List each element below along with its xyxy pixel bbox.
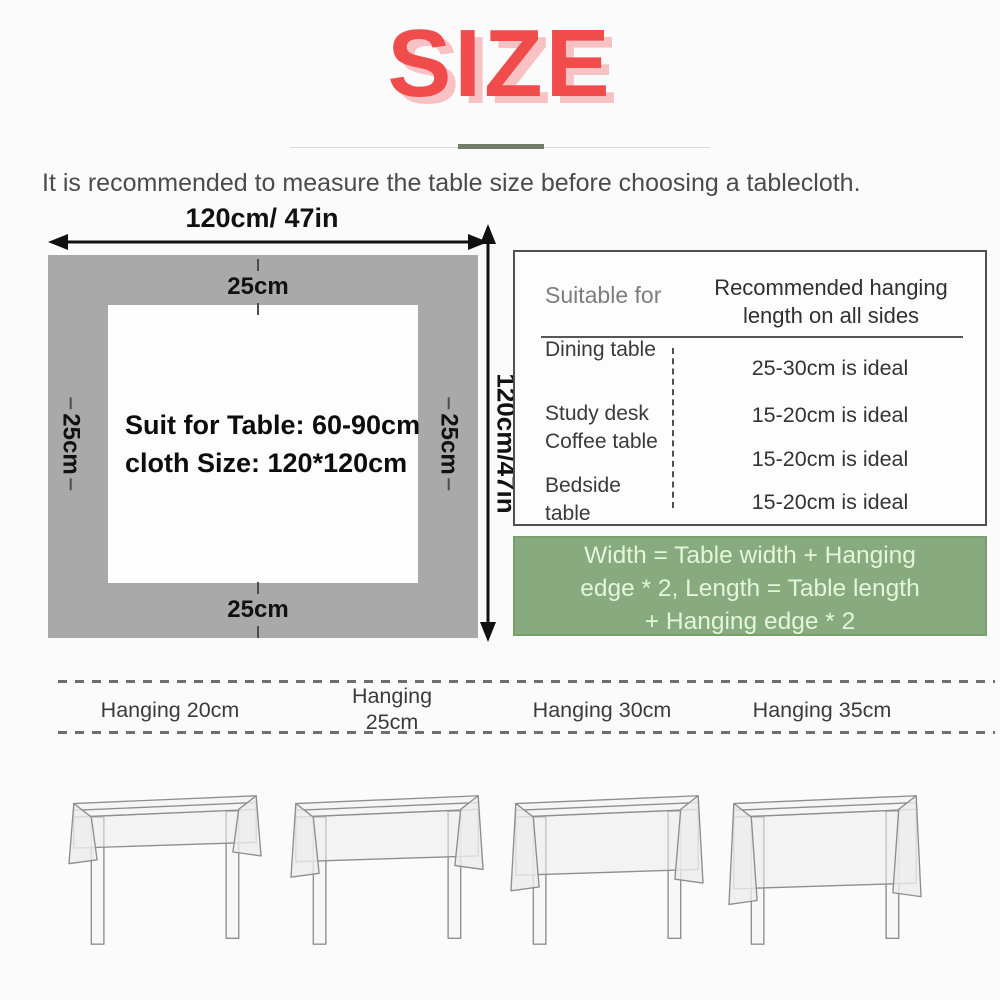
hang-right-label: 25cm [435,397,463,490]
hang-left-label: 25cm [57,397,85,490]
tick-icon [448,397,450,409]
tablecloth-table-illustration [728,786,922,951]
dashed-line-top [58,680,995,683]
table-row-item: Bedside table [545,472,663,528]
hanging-label-25cm: Hanging 25cm [337,683,447,735]
table-row-value: 15-20cm is ideal [685,403,975,428]
hang-bottom-label: 25cm [218,580,298,640]
hanging-label-30cm: Hanging 30cm [492,697,712,723]
tick-icon [257,626,259,638]
intro-text: It is recommended to measure the table s… [42,169,861,198]
suit-size-text: Suit for Table: 60-90cm cloth Size: 120*… [125,406,420,482]
width-arrow [48,230,488,254]
tick-icon [448,479,450,491]
table-row-item: Study desk [545,400,663,428]
dashed-line-bottom [58,731,995,734]
table-row-value: 15-20cm is ideal [685,490,975,515]
hanging-label-35cm: Hanging 35cm [712,697,932,723]
tick-icon [70,479,72,491]
tick-icon [257,303,259,315]
suit-for-table-line: Suit for Table: 60-90cm [125,406,420,444]
cloth-size-line: cloth Size: 120*120cm [125,444,420,482]
tick-icon [70,397,72,409]
tablecloth-table-illustration [510,786,704,951]
hanging-recommendation-table: Suitable for Recommended hanging length … [513,250,987,526]
tablecloth-table-illustration [290,786,484,951]
column-divider [672,348,674,508]
tick-icon [257,259,259,271]
table-row-value: 15-20cm is ideal [685,447,975,472]
table-row-item: Dining table [545,336,663,364]
tick-icon [257,582,259,594]
hanging-label-20cm: Hanging 20cm [60,697,280,723]
tablecloth-size-diagram: 120cm/ 47in 120cm/47in 25cm 25cm 25cm 25… [40,200,570,650]
size-formula-box: Width = Table width + Hanging edge * 2, … [513,536,987,636]
hang-top-label: 25cm [218,257,298,317]
tablecloth-table-illustration [68,786,262,951]
column-header-suitable-for: Suitable for [545,282,661,309]
title-underline-accent [458,144,544,149]
column-header-recommended-length: Recommended hanging length on all sides [681,274,981,330]
table-illustrations [0,786,1000,976]
table-row-value: 25-30cm is ideal [685,356,975,381]
page-title: SIZE [0,16,1000,112]
table-row-item: Coffee table [545,428,663,456]
